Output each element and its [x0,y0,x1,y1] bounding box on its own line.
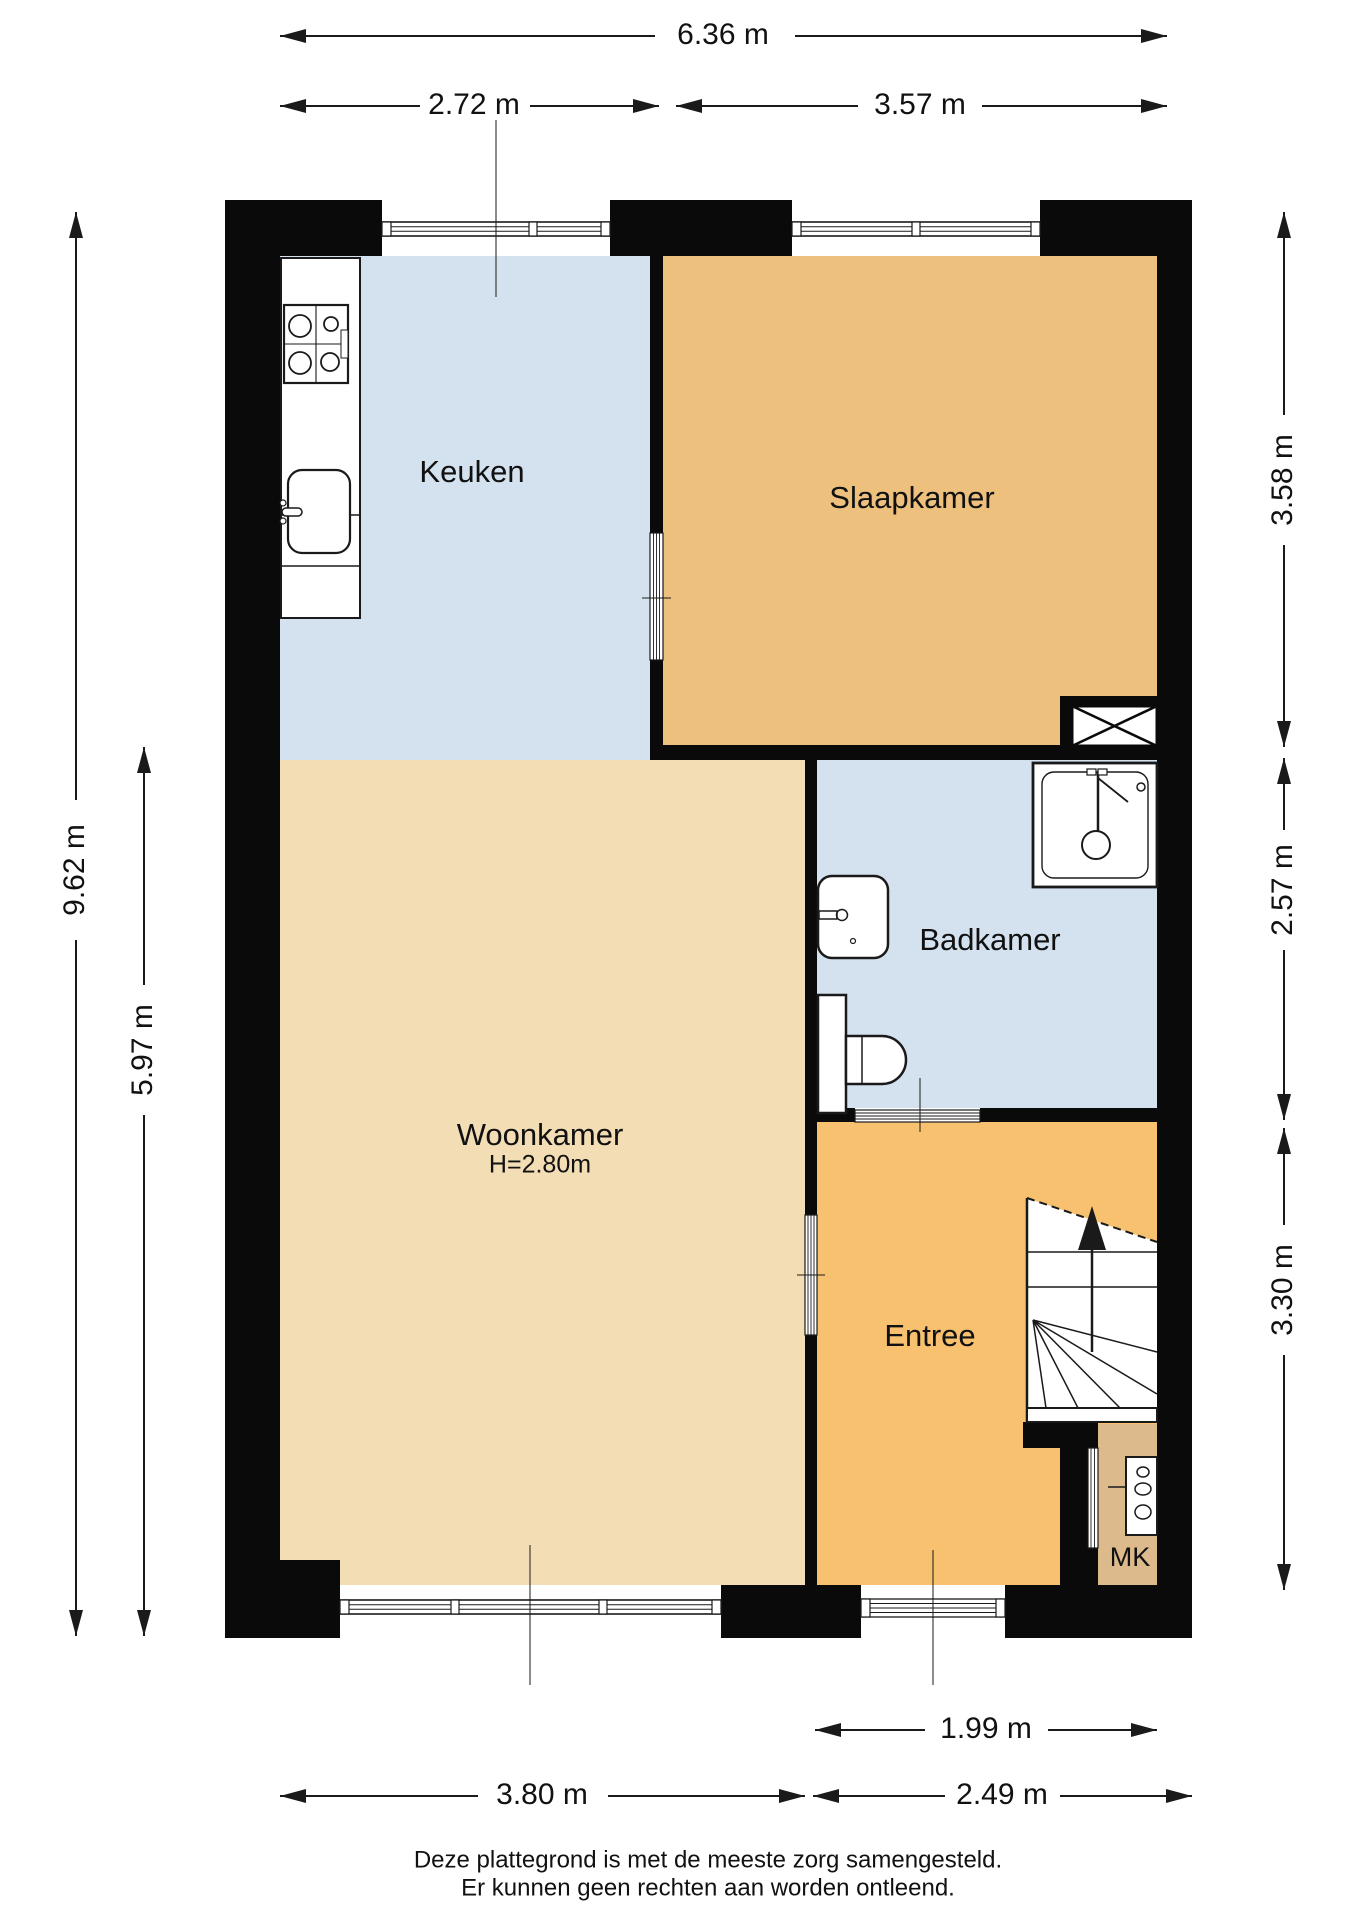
arrow [633,99,659,113]
wall [1060,1448,1088,1585]
arrow [1277,1094,1291,1120]
label-entree: Entree [884,1318,975,1353]
dim-bottom-woonkamer: 3.80 m [496,1778,588,1811]
wall [1005,1585,1192,1638]
door-keuken-slaapkamer [650,533,663,660]
dim-left-woonkamer: 5.97 m [126,1004,159,1096]
wall [721,1585,861,1638]
dim-right-badkamer: 2.57 m [1266,844,1299,936]
arrow [280,29,306,43]
ventilation-shaft-icon [1072,706,1157,746]
dim-bottom-entree: 2.49 m [956,1778,1048,1811]
wall [225,200,382,256]
arrow [813,1789,839,1803]
dim-top-keuken: 2.72 m [428,88,520,121]
stairs-bottom-tread [1027,1408,1157,1422]
washbasin-icon [818,876,888,958]
shower-icon [1033,763,1157,887]
arrow [280,1789,306,1803]
stove-icon [284,305,348,383]
wall [225,256,280,1585]
arrow [1277,721,1291,747]
stairs-up-arrow-icon [1027,1198,1157,1422]
wall [805,760,817,1215]
dim-right-entree: 3.30 m [1266,1244,1299,1336]
label-slaapkamer: Slaapkamer [829,480,994,515]
label-badkamer: Badkamer [919,922,1060,957]
arrow [779,1789,805,1803]
window-slaapkamer [792,222,1040,236]
arrow [1131,1723,1157,1737]
wall [805,1335,817,1585]
label-keuken: Keuken [419,454,524,489]
footer-line2: Er kunnen geen rechten aan worden ontlee… [461,1874,955,1901]
arrow [280,99,306,113]
footer-line1: Deze plattegrond is met de meeste zorg s… [414,1846,1002,1873]
arrow [1141,29,1167,43]
dim-right-slaapkamer: 3.58 m [1266,434,1299,526]
arrow [676,99,702,113]
wall [1023,1422,1098,1448]
door-meterkast [1088,1448,1098,1548]
arrow [69,1610,83,1636]
arrow [815,1723,841,1737]
wall [980,1108,1157,1122]
dim-left-total: 9.62 m [58,824,91,916]
arrow [69,212,83,238]
kitchen-sink-icon [280,470,350,553]
floorplan-drawing: 6.36 m 2.72 m 3.57 m 9.62 m 5.97 m 3.58 … [0,0,1358,1920]
kitchen-fixtures [280,258,360,618]
rooms [280,256,1157,1585]
wall [1040,200,1192,256]
arrow [1277,758,1291,784]
label-meterkast: MK [1110,1542,1151,1572]
arrow [1166,1789,1192,1803]
wall [1157,256,1192,1585]
dim-top-total: 6.36 m [677,18,769,51]
wall [225,1560,340,1638]
footer: Deze plattegrond is met de meeste zorg s… [414,1846,1002,1901]
wall [610,200,792,256]
arrow [1277,1128,1291,1154]
wall [1088,1548,1098,1585]
dim-bottom-entree-door: 1.99 m [940,1712,1032,1745]
arrow [1277,212,1291,238]
dim-top-slaapkamer: 3.57 m [874,88,966,121]
arrow [137,1610,151,1636]
wall [650,256,663,533]
arrow [137,747,151,773]
arrow [1277,1564,1291,1590]
arrow [1141,99,1167,113]
floorplan-page: 6.36 m 2.72 m 3.57 m 9.62 m 5.97 m 3.58 … [0,0,1358,1920]
label-woonkamer: Woonkamer [457,1117,624,1152]
label-woonkamer-height: H=2.80m [489,1151,591,1179]
door-badkamer [855,1110,980,1122]
